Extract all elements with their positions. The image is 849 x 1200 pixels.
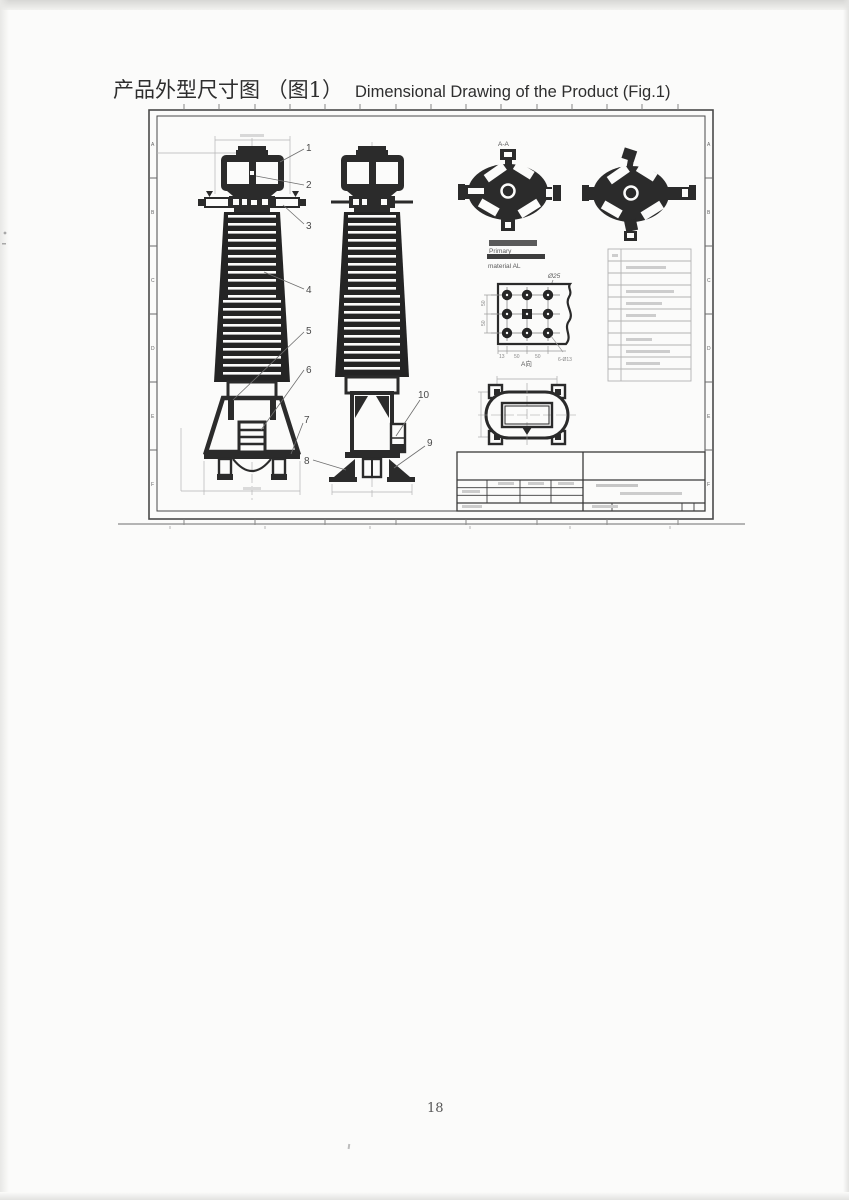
zone-letter: E bbox=[707, 414, 711, 420]
callout-7: 7 bbox=[304, 415, 310, 426]
scanned-page: 产品外型尺寸图 （图1） Dimensional Drawing of the … bbox=[0, 0, 849, 1200]
zone-letter: C bbox=[151, 278, 155, 284]
dim-washer: Ø25 bbox=[547, 273, 561, 280]
zone-letter: A bbox=[151, 142, 155, 148]
callout-2: 2 bbox=[306, 180, 312, 191]
dim-50-horizontal-1: 50 bbox=[514, 354, 520, 360]
zone-letter: C bbox=[707, 278, 711, 284]
callout-1: 1 bbox=[306, 143, 312, 154]
base-bottom-view bbox=[478, 376, 576, 447]
zone-letter: F bbox=[707, 482, 710, 488]
callout-8: 8 bbox=[304, 456, 310, 467]
terminal-plate-detail: Ø25 bbox=[481, 273, 572, 368]
zone-letters-right: A B C D E F bbox=[707, 142, 711, 488]
page-title-en: Dimensional Drawing of the Product (Fig.… bbox=[355, 83, 670, 101]
callout-6: 6 bbox=[306, 365, 312, 376]
dim-50-horizontal-2: 50 bbox=[535, 354, 541, 360]
title-block bbox=[457, 452, 705, 511]
junction-box bbox=[391, 424, 405, 452]
page-title-zh: 产品外型尺寸图 （图1） bbox=[113, 78, 343, 102]
section-marker-a-right bbox=[292, 191, 299, 197]
top-view-section-aa: A-A bbox=[458, 141, 561, 231]
sheet-base-ticks bbox=[170, 526, 670, 529]
zone-letter: D bbox=[707, 346, 711, 352]
elevation-view-left bbox=[157, 134, 306, 500]
callout-9: 9 bbox=[427, 438, 433, 449]
dim-50-vertical-2: 50 bbox=[481, 320, 487, 326]
zone-letter: F bbox=[151, 482, 154, 488]
dim-50-vertical-1: 50 bbox=[481, 300, 487, 306]
note-primary: Primary bbox=[489, 248, 512, 255]
zone-letter: D bbox=[151, 346, 155, 352]
zone-letters-left: A B C D E F bbox=[151, 142, 155, 488]
dim-13: 13 bbox=[499, 354, 505, 360]
section-marker-a-left bbox=[206, 191, 213, 197]
callout-4: 4 bbox=[306, 285, 312, 296]
callout-5: 5 bbox=[306, 326, 312, 337]
zone-letter: A bbox=[707, 142, 711, 148]
elevation-view-right bbox=[329, 142, 415, 497]
zone-letter: B bbox=[151, 210, 155, 216]
top-view-plan bbox=[582, 147, 696, 241]
zone-letter: E bbox=[151, 414, 155, 420]
zone-letter: B bbox=[707, 210, 711, 216]
view-a-label: A向 bbox=[521, 359, 532, 368]
note-material: material AL bbox=[488, 263, 521, 270]
scan-specks bbox=[2, 232, 350, 1150]
drawing-sheet: 产品外型尺寸图 （图1） Dimensional Drawing of the … bbox=[0, 0, 849, 1200]
terminal-note: Primary material AL bbox=[487, 240, 545, 270]
section-aa-label: A-A bbox=[498, 141, 510, 148]
dim-holes: 6-Ø13 bbox=[558, 357, 572, 363]
callout-10: 10 bbox=[418, 390, 430, 401]
callout-3: 3 bbox=[306, 221, 312, 232]
page-number: 18 bbox=[427, 1101, 444, 1116]
